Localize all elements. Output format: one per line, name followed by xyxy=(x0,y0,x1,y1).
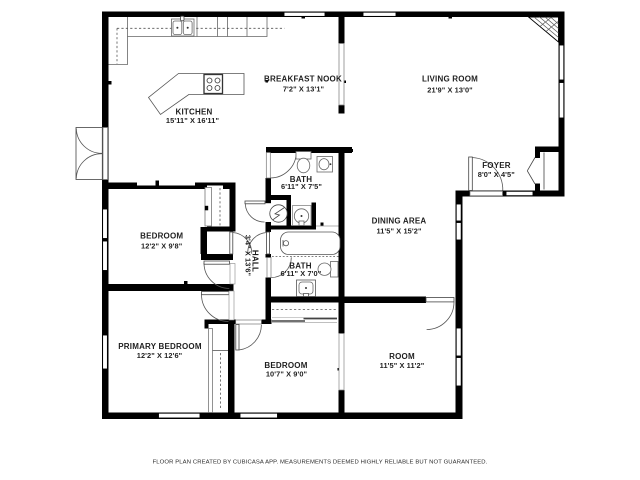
svg-text:15'11" X 16'11": 15'11" X 16'11" xyxy=(166,116,220,125)
svg-text:11'5" X 11'2": 11'5" X 11'2" xyxy=(380,361,425,370)
svg-text:DINING AREA: DINING AREA xyxy=(372,216,427,225)
svg-text:BREAKFAST NOOK: BREAKFAST NOOK xyxy=(264,74,342,83)
svg-text:6'11" X 7'0": 6'11" X 7'0" xyxy=(280,269,321,278)
svg-text:ROOM: ROOM xyxy=(389,352,415,361)
svg-text:PRIMARY BEDROOM: PRIMARY BEDROOM xyxy=(118,342,202,351)
svg-text:FLOOR PLAN CREATED BY CUBICASA: FLOOR PLAN CREATED BY CUBICASA APP. MEAS… xyxy=(153,460,488,466)
svg-text:LIVING ROOM: LIVING ROOM xyxy=(422,75,478,84)
svg-text:8'0" X 4'5": 8'0" X 4'5" xyxy=(478,170,515,179)
svg-text:3'4" X 13'6": 3'4" X 13'6" xyxy=(243,235,252,277)
svg-text:12'2" X 9'8": 12'2" X 9'8" xyxy=(141,241,183,250)
svg-text:21'9" X 13'0": 21'9" X 13'0" xyxy=(427,85,473,94)
svg-text:12'2" X 12'6": 12'2" X 12'6" xyxy=(137,351,183,360)
svg-text:10'7" X 9'0": 10'7" X 9'0" xyxy=(266,369,308,378)
svg-text:FOYER: FOYER xyxy=(482,161,511,170)
svg-text:7'2" X 13'1": 7'2" X 13'1" xyxy=(283,85,325,94)
svg-text:11'5" X 15'2": 11'5" X 15'2" xyxy=(376,226,422,235)
svg-text:BEDROOM: BEDROOM xyxy=(140,232,183,241)
svg-text:6'11" X 7'5": 6'11" X 7'5" xyxy=(281,182,322,191)
